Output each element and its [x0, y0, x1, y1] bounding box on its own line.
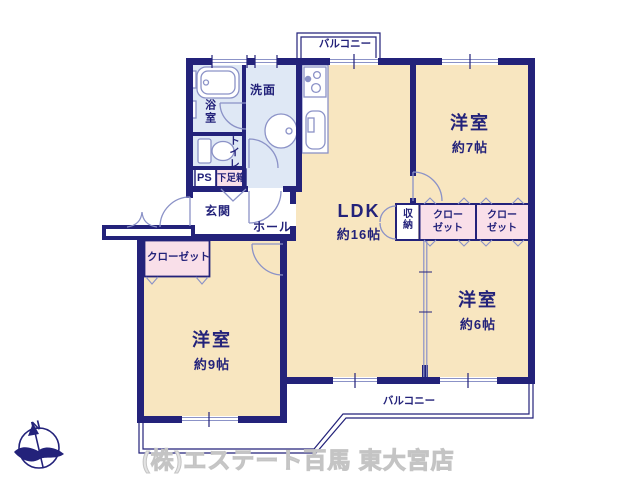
room-label-shoe-box: 下足箱 — [217, 174, 246, 185]
closet-label-1: クローゼット — [429, 209, 467, 235]
balcony-label-bottom: バルコニー — [378, 395, 440, 407]
room-label-western-9: 洋室 約9帖 — [166, 326, 258, 373]
room-label-ps: PS — [197, 172, 212, 185]
realtor-watermark: (株)エステート百馬 東大宮店 — [142, 441, 455, 475]
room-label-bath: 浴室 — [203, 99, 216, 125]
room-label-western-6: 洋室 約6帖 — [432, 286, 524, 333]
room-size: 約6帖 — [432, 314, 524, 333]
room-name: LDK — [313, 201, 405, 222]
room-name: 洋室 — [424, 109, 516, 135]
room-label-hall: ホール — [253, 221, 292, 235]
closet-label-2: クローゼット — [483, 209, 521, 235]
room-label-ldk: LDK 約16帖 — [313, 201, 405, 243]
closet-label-left: クローゼット — [147, 251, 210, 263]
room-label-entrance: 玄関 — [205, 205, 231, 219]
room-label-western-7: 洋室 約7帖 — [424, 109, 516, 156]
room-label-toilet: トイレ — [228, 135, 240, 170]
floor-plan: 浴室 洗面 トイレ PS 下足箱 玄関 ホール 収納 LDK 約16帖 洋室 約… — [0, 0, 640, 480]
balcony-label-top: バルコニー — [314, 38, 376, 50]
toilet-icon — [198, 139, 211, 163]
room-size: 約9帖 — [166, 354, 258, 373]
room-size: 約7帖 — [424, 137, 516, 156]
room-size: 約16帖 — [313, 224, 405, 243]
room-name: 洋室 — [432, 286, 524, 312]
room-name: 洋室 — [166, 326, 258, 352]
room-label-washroom: 洗面 — [250, 84, 276, 98]
